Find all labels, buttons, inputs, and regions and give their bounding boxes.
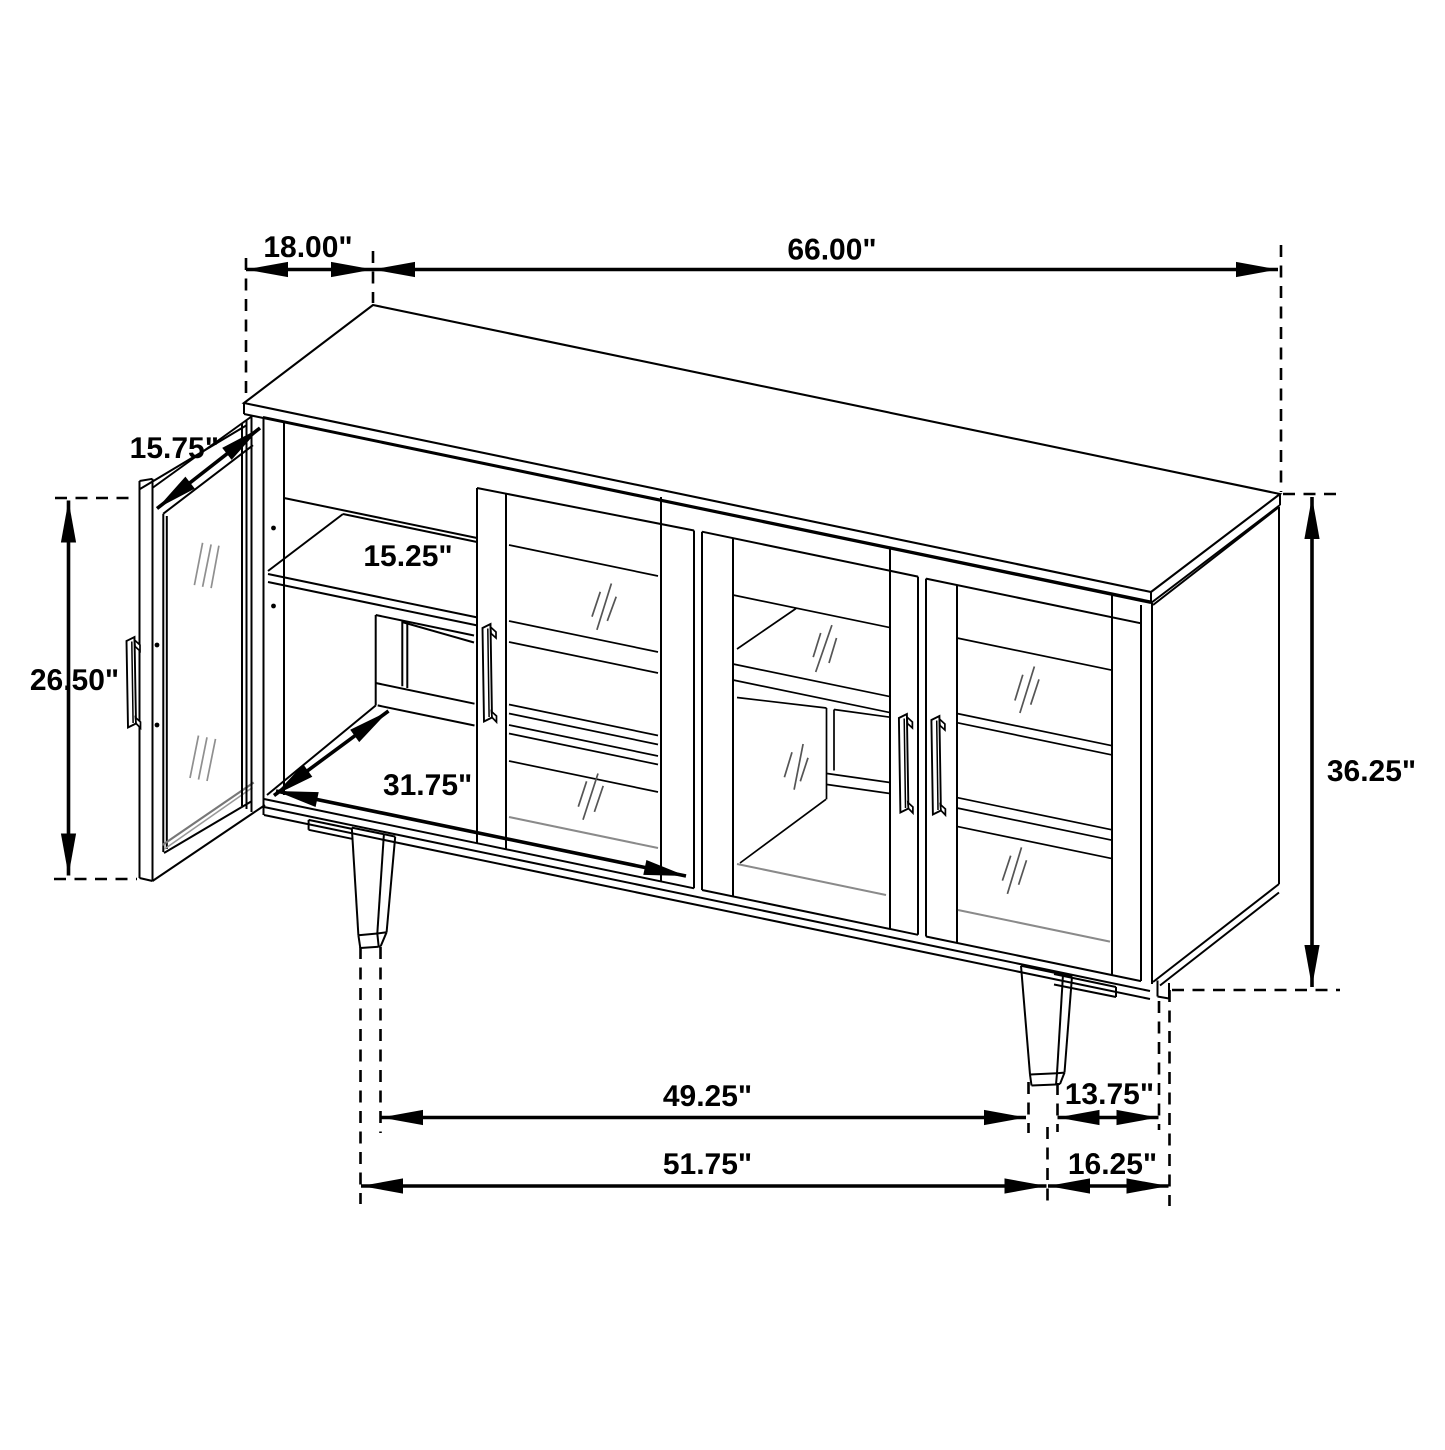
svg-text:15.25": 15.25" — [363, 540, 452, 573]
svg-text:26.50": 26.50" — [30, 664, 119, 697]
svg-text:51.75": 51.75" — [663, 1148, 752, 1181]
svg-text:36.25": 36.25" — [1327, 755, 1416, 788]
svg-text:13.75": 13.75" — [1065, 1078, 1154, 1111]
svg-text:31.75": 31.75" — [383, 769, 472, 802]
svg-text:66.00": 66.00" — [787, 234, 876, 267]
svg-text:15.75": 15.75" — [130, 432, 219, 465]
svg-text:18.00": 18.00" — [263, 231, 352, 264]
svg-text:16.25": 16.25" — [1068, 1148, 1157, 1181]
svg-text:49.25": 49.25" — [663, 1080, 752, 1113]
